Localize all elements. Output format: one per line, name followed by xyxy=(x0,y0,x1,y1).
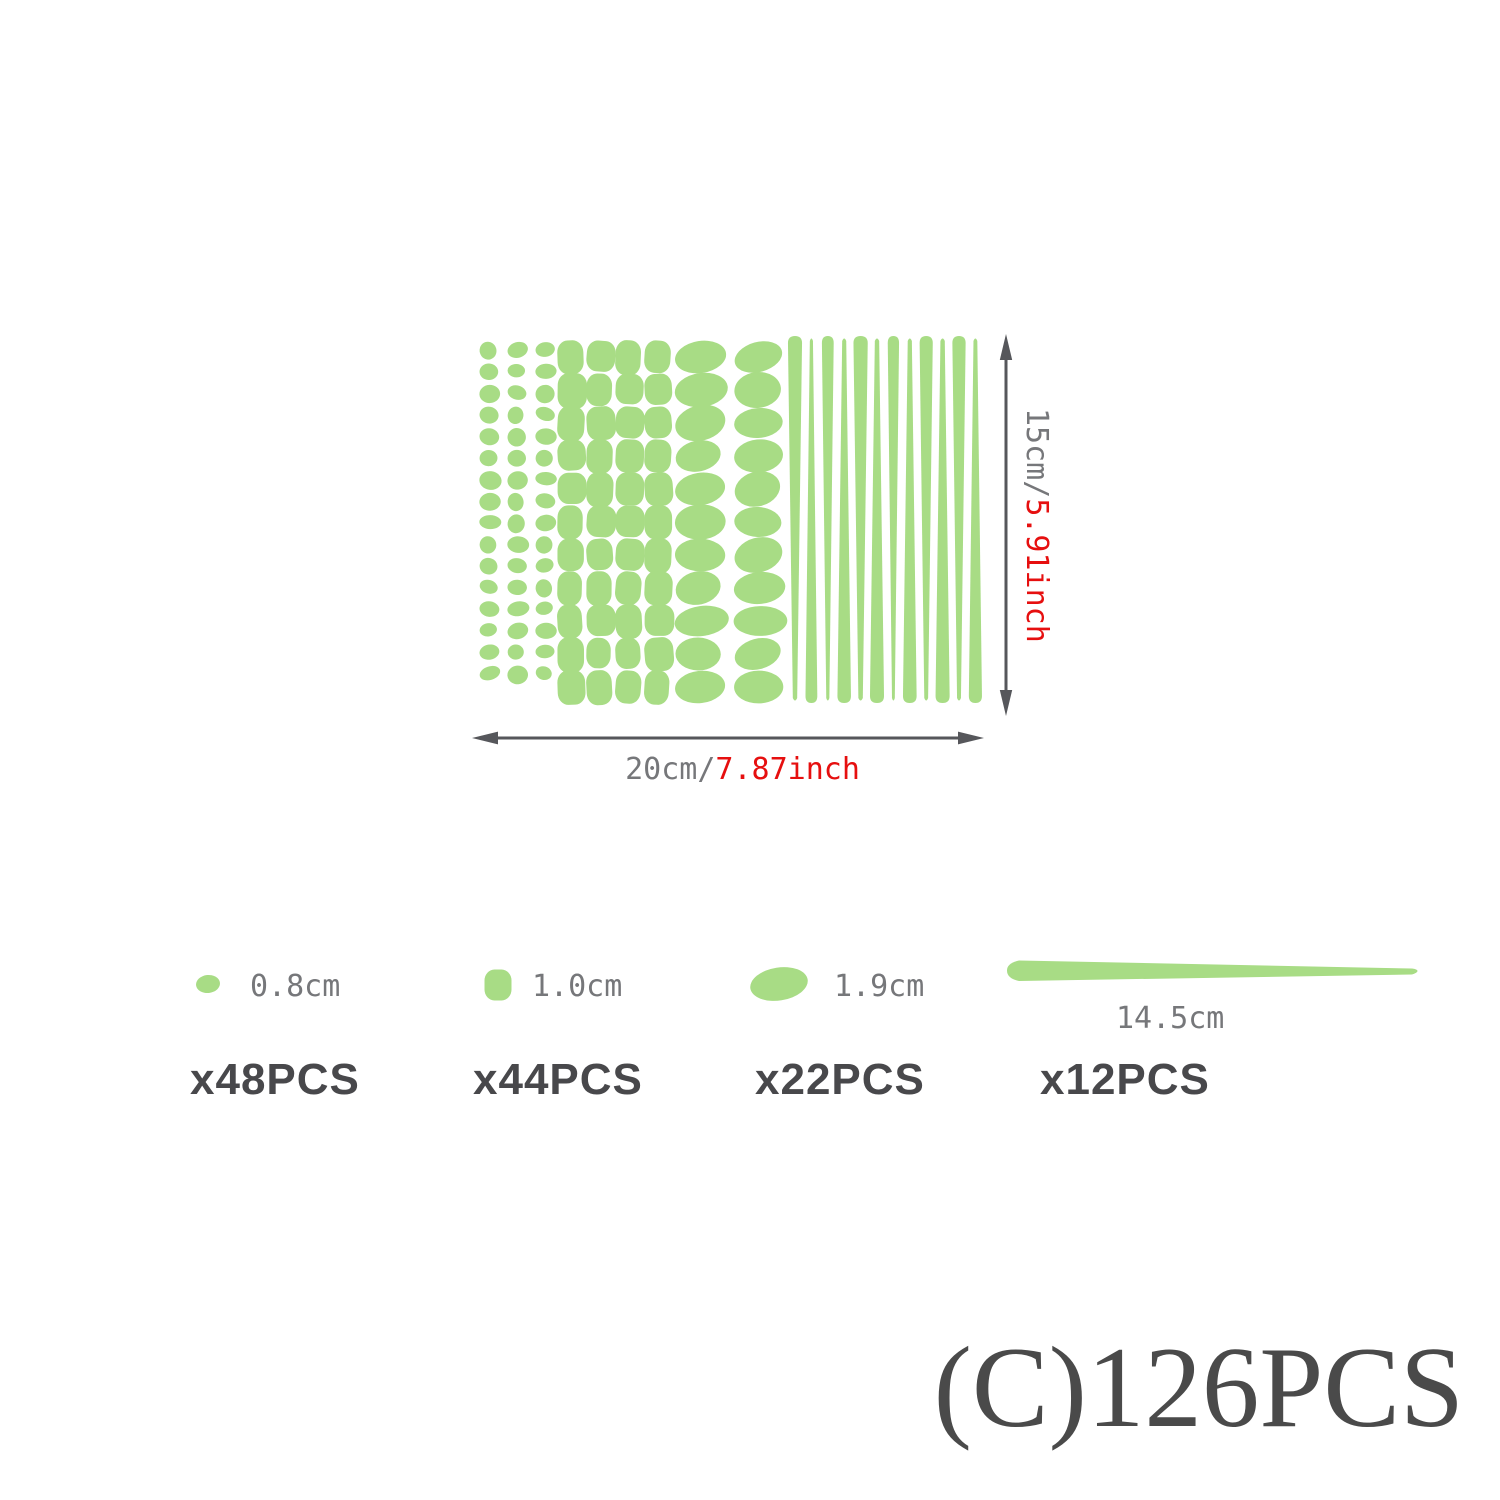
legend-count-dot: x48PCS xyxy=(190,1058,360,1102)
legend-size-dot: 0.8cm xyxy=(250,972,340,1002)
height-metric-text: 15cm/ xyxy=(1019,408,1054,498)
horizontal-dimension-arrow xyxy=(472,732,984,745)
dot-swatch-icon xyxy=(195,974,221,994)
dot-grid xyxy=(478,339,558,685)
oval-grid xyxy=(671,336,787,706)
sticker-sheet-svg xyxy=(470,330,1015,750)
square-grid xyxy=(556,340,675,706)
legend-size-line: 14.5cm xyxy=(1116,1004,1224,1034)
legend-count-oval: x22PCS xyxy=(755,1058,925,1102)
legend-count-square: x44PCS xyxy=(473,1058,643,1102)
oval-swatch-icon xyxy=(748,964,810,1004)
legend-size-oval: 1.9cm xyxy=(834,972,924,1002)
width-imperial-text: 7.87inch xyxy=(715,752,860,787)
width-metric-text: 20cm/ xyxy=(625,752,715,787)
line-strip xyxy=(788,336,982,703)
square-swatch-icon xyxy=(483,968,513,1002)
legend-count-line: x12PCS xyxy=(1040,1058,1210,1102)
line-swatch-icon xyxy=(1006,959,1418,983)
height-dimension-label: 15cm/5.91inch xyxy=(1011,335,1053,715)
height-imperial-text: 5.91inch xyxy=(1019,498,1054,643)
total-count-label: (C)126PCS xyxy=(934,1330,1464,1445)
width-dimension-label: 20cm/7.87inch xyxy=(470,753,1015,786)
legend-size-square: 1.0cm xyxy=(532,972,622,1002)
product-size-infographic: 15cm/5.91inch 20cm/7.87inch 0.8cm x48PCS… xyxy=(0,0,1500,1500)
